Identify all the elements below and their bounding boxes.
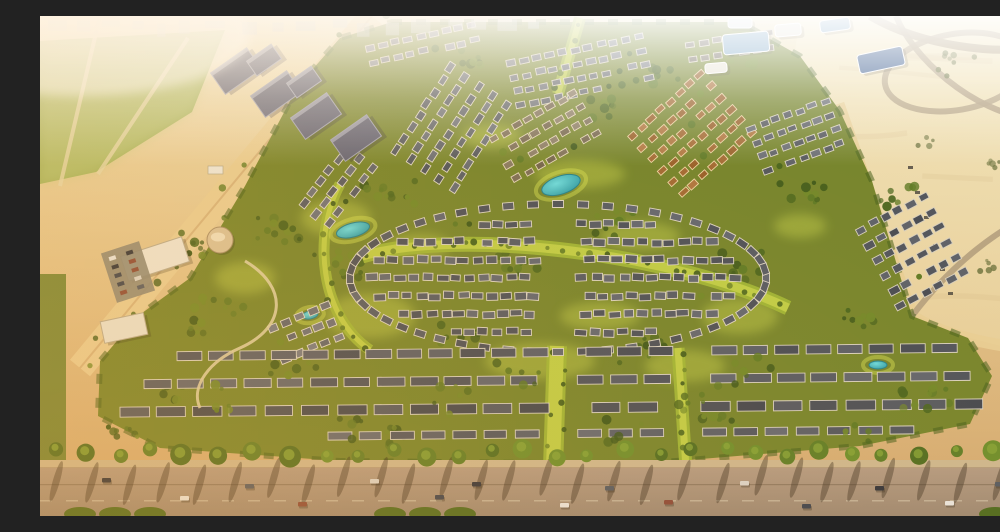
aerial-community-photo: Golden-hour aerial rendering of a desert… <box>40 16 1000 516</box>
atmosphere-overlays <box>40 16 1000 516</box>
aerial-render-canvas <box>40 16 1000 516</box>
